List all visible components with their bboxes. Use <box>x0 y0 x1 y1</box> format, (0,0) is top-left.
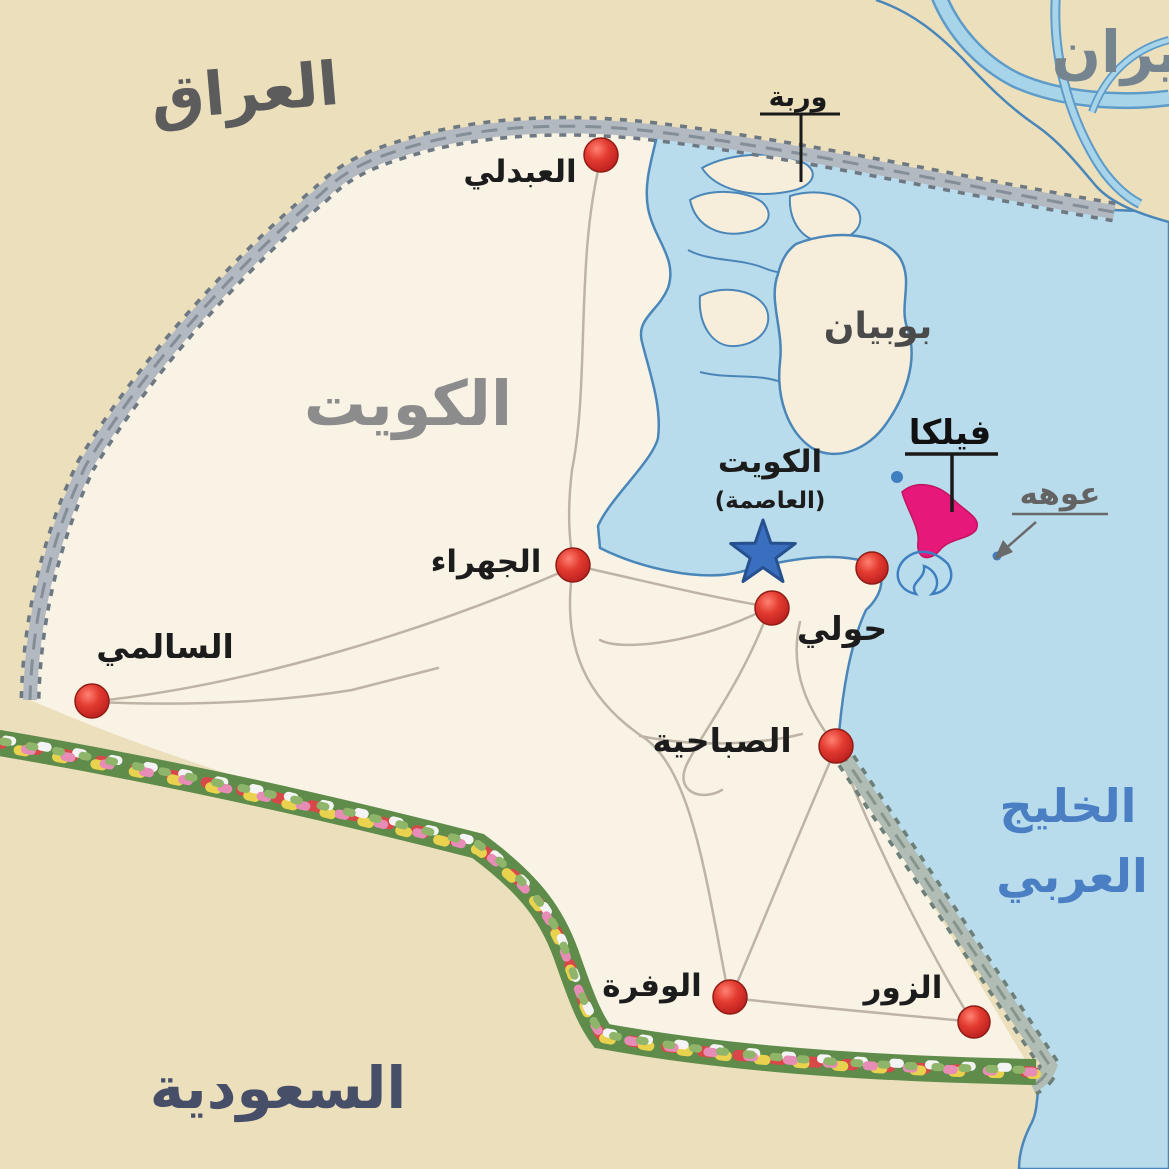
islet-dot <box>891 471 903 483</box>
city-marker-salmi <box>75 684 109 718</box>
label-gulf-line2: العربي <box>996 849 1147 903</box>
label-saudi-arabia: السعودية <box>150 1054 407 1123</box>
label-kuwait-country: الكويت <box>304 367 512 440</box>
label-bubiyan: بوبيان <box>824 306 933 347</box>
city-marker-coastal <box>856 552 888 584</box>
city-marker-sabahiya <box>819 729 853 763</box>
city-marker-wafra <box>713 980 747 1014</box>
label-abdali: العبدلي <box>463 154 576 190</box>
label-auhah: عوهه <box>1020 476 1101 512</box>
label-warbah: وربة <box>769 82 828 113</box>
label-gulf-line1: الخليج <box>1000 779 1137 833</box>
city-marker-abdali <box>584 138 618 172</box>
label-iran: ايران <box>1051 18 1169 87</box>
label-hawalli: حولي <box>797 609 887 649</box>
city-marker-hawalli <box>755 591 789 625</box>
label-salmi: السالمي <box>96 627 234 666</box>
city-marker-jahra <box>556 548 590 582</box>
label-capital-name: الكويت <box>718 444 822 480</box>
kuwait-map: العراق ايران الكويت السعودية الخليج العر… <box>0 0 1169 1169</box>
city-marker-zour <box>958 1006 990 1038</box>
label-zour: الزور <box>862 970 943 1006</box>
label-sabahiya: الصباحية <box>652 721 791 760</box>
label-capital-designation: (العاصمة) <box>715 488 826 514</box>
label-failaka: فيلكا <box>909 413 992 453</box>
label-jahra: الجهراء <box>431 544 542 580</box>
label-wafra: الوفرة <box>602 968 702 1004</box>
